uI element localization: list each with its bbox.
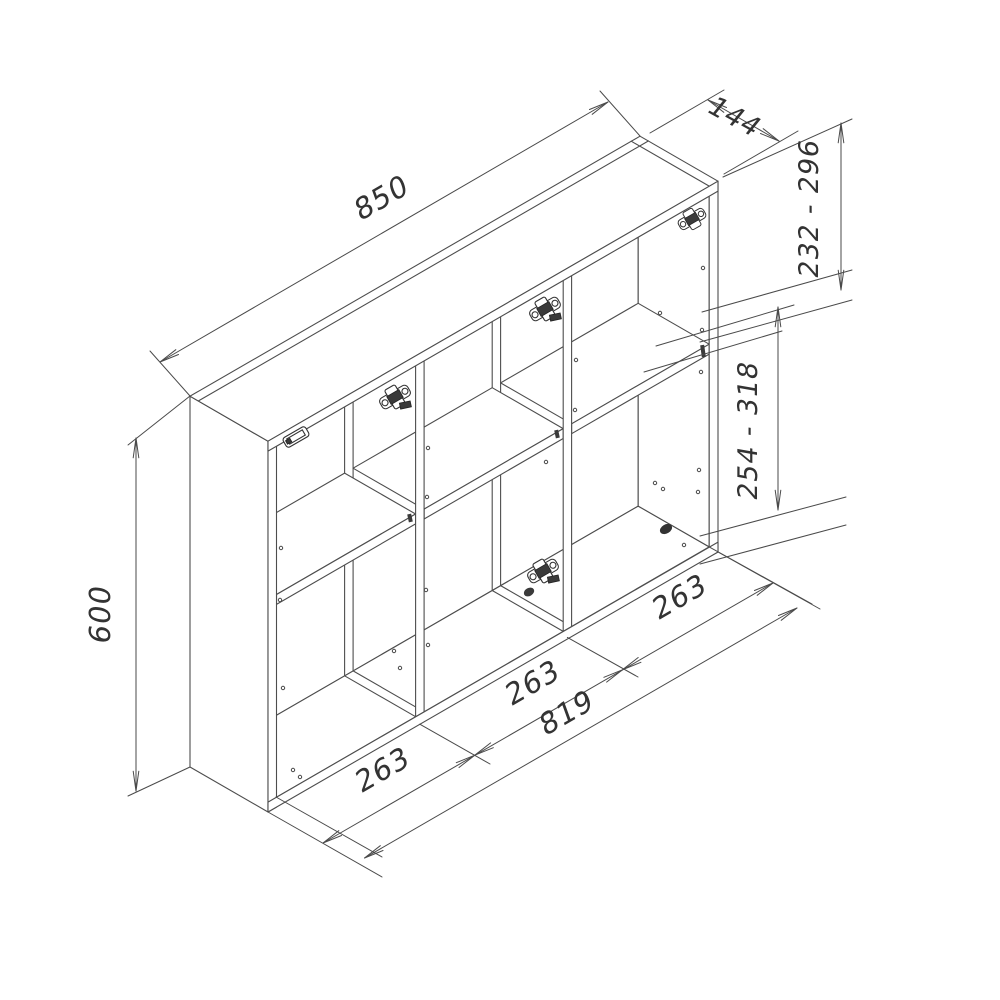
divider-1-front [416,361,425,717]
dim-label-upper-shelf-range: 232 - 296 [794,136,825,280]
dim-label-overall-height: 600 [83,582,117,646]
drawing-canvas: 850 144 232 - 296 254 - 318 600 [0,0,1000,1000]
dim-upper-shelf-range: 232 - 296 [700,119,852,342]
right-panel-front [709,181,718,557]
dim-overall-height: 600 [83,396,190,796]
divider-2-front [563,275,571,631]
dim-label-lower-shelf-range: 254 - 318 [733,358,764,502]
cabinet [190,136,718,812]
dim-label-depth: 144 [701,92,768,143]
cabinet-dimension-drawing: 850 144 232 - 296 254 - 318 600 [0,0,1000,1000]
dim-label-overall-width: 850 [350,167,412,228]
left-panel [190,391,277,812]
